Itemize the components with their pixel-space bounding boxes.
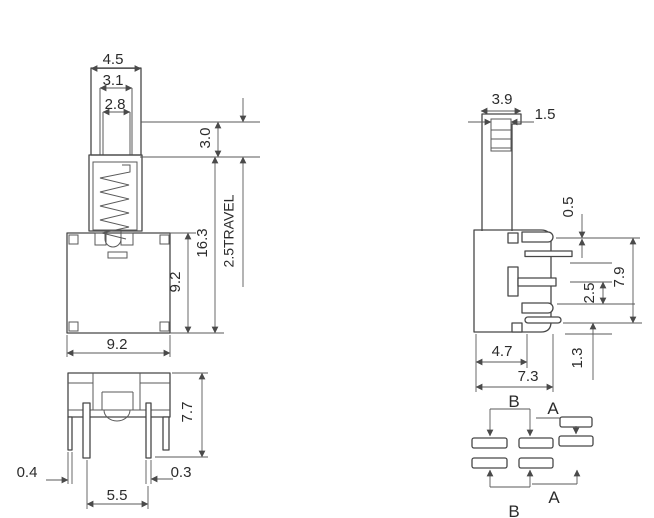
dim-bottom-clearance: 1.3 bbox=[569, 348, 586, 369]
bottom-view-dimensions: 7.7 0.4 0.3 5.5 bbox=[17, 373, 208, 509]
dim-overall-height: 16.3 bbox=[194, 228, 211, 257]
upper-tab bbox=[522, 232, 553, 242]
front-view: 4.5 3.1 2.8 3.0 2.5TRAVEL 16.3 9.2 9.2 bbox=[67, 51, 260, 357]
dim-bottom-height: 7.7 bbox=[179, 402, 196, 423]
bottom-view: 7.7 0.4 0.3 5.5 bbox=[17, 373, 208, 509]
dim-side-body-height: 7.9 bbox=[611, 267, 628, 288]
terminal-pad bbox=[519, 458, 553, 468]
side-view-body bbox=[474, 230, 572, 332]
dim-stem-tip-width: 1.5 bbox=[535, 106, 556, 123]
terminal-pad bbox=[472, 438, 507, 448]
terminal-pad bbox=[560, 417, 592, 427]
terminal-diagram: B A B A bbox=[472, 392, 593, 518]
dim-terminal-pitch: 2.5 bbox=[581, 283, 598, 304]
lower-terminal-pin bbox=[525, 317, 561, 323]
side-view-dimensions: 3.9 1.5 0.5 2.5 7.9 1.3 4.7 bbox=[468, 91, 642, 392]
right-pin bbox=[146, 403, 151, 458]
terminal-pad bbox=[519, 438, 553, 448]
lower-tab bbox=[522, 303, 553, 313]
left-pin bbox=[83, 403, 90, 458]
switch-drawing: 4.5 3.1 2.8 3.0 2.5TRAVEL 16.3 9.2 9.2 bbox=[0, 0, 654, 518]
dim-cap-width: 4.5 bbox=[103, 51, 124, 68]
dim-side-body-width: 7.3 bbox=[518, 368, 539, 385]
spring-coil bbox=[100, 165, 130, 239]
dim-cap-step-width: 3.1 bbox=[103, 72, 124, 89]
terminal-label-b-bottom: B bbox=[508, 502, 519, 518]
right-leg bbox=[163, 417, 169, 450]
upper-terminal-pin bbox=[525, 251, 572, 257]
terminal-label-a-top: A bbox=[547, 399, 559, 418]
dim-travel: 2.5TRAVEL bbox=[221, 194, 237, 267]
bottom-view-dome bbox=[104, 410, 130, 421]
stem-base-tab bbox=[508, 233, 518, 243]
dim-terminal-offset: 0.5 bbox=[560, 197, 577, 218]
dim-stem-width: 3.9 bbox=[492, 91, 513, 108]
dim-cap-bore-width: 2.8 bbox=[105, 96, 126, 113]
technical-drawing-page: 4.5 3.1 2.8 3.0 2.5TRAVEL 16.3 9.2 9.2 bbox=[0, 0, 654, 518]
dim-cap-height: 3.0 bbox=[197, 128, 214, 149]
side-view: 3.9 1.5 0.5 2.5 7.9 1.3 4.7 bbox=[468, 91, 642, 392]
dim-pin-spacing: 5.5 bbox=[107, 487, 128, 504]
bottom-view-body bbox=[68, 373, 170, 458]
dim-inner-width: 4.7 bbox=[492, 343, 513, 360]
side-view-stem bbox=[482, 114, 521, 231]
dim-pin-width: 0.3 bbox=[171, 464, 192, 481]
terminal-pad bbox=[559, 436, 593, 446]
dim-leg-width: 0.4 bbox=[17, 464, 38, 481]
terminal-label-a-bottom: A bbox=[548, 488, 560, 507]
contact-shaft bbox=[518, 278, 556, 286]
dim-body-width: 9.2 bbox=[107, 336, 128, 353]
terminal-pad bbox=[472, 458, 507, 468]
front-view-body bbox=[67, 233, 170, 333]
bottom-notch bbox=[512, 323, 522, 332]
left-leg bbox=[68, 417, 72, 450]
dim-body-height: 9.2 bbox=[167, 272, 184, 293]
contact-bar bbox=[508, 267, 518, 296]
front-view-dimensions: 4.5 3.1 2.8 3.0 2.5TRAVEL 16.3 9.2 9.2 bbox=[67, 51, 260, 357]
terminal-label-b-top: B bbox=[508, 392, 519, 411]
